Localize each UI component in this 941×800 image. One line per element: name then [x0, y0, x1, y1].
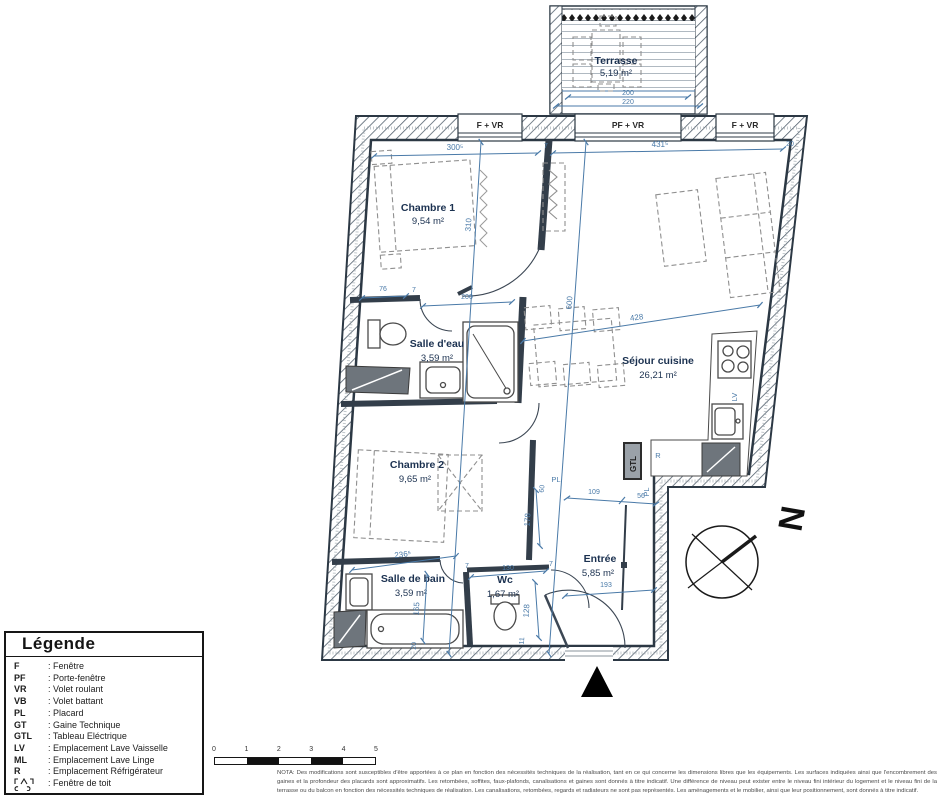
nota-text: NOTA: Des modifications sont susceptible…	[277, 769, 937, 796]
window-left-label: F + VR	[477, 120, 504, 130]
chambre2-label: Chambre 2	[390, 459, 444, 471]
basin-drain	[441, 383, 446, 388]
dim-top-right: 431⁵	[652, 140, 669, 149]
terrace: Terrasse 5,19 m² 200 220	[550, 6, 707, 114]
legend-item: LV: Emplacement Lave Vaisselle	[14, 743, 198, 755]
shower-drain	[504, 388, 510, 394]
dim-chambre2-height: 178	[523, 512, 533, 526]
window-left: F + VR	[458, 114, 522, 141]
salle-de-bain-label: Salle de bain	[381, 573, 445, 585]
dim-sejour-width: 428	[629, 312, 644, 323]
bathtub-inner	[371, 614, 459, 644]
toilet-bowl	[380, 323, 406, 345]
window-center-label: PF + VR	[612, 120, 644, 130]
sejour-label: Séjour cuisine	[622, 355, 694, 367]
dim-sde-left: 76	[379, 286, 387, 293]
floor-plan-sheet: Terrasse 5,19 m² 200 220 F + VR PF + VR	[0, 0, 941, 800]
dim-chambre2-pl: 60	[539, 484, 547, 493]
terrace-label: Terrasse	[594, 55, 637, 67]
dim-wc-height: 128	[522, 603, 532, 617]
chambre1-area: 9,54 m²	[412, 216, 444, 227]
windows: F + VR PF + VR F + VR	[458, 114, 774, 141]
legend-item: VB: Volet battant	[14, 696, 198, 708]
dim-top-wall: 7	[544, 143, 548, 150]
scale-bar-numbers: 0 1 2 3 4 5	[214, 746, 376, 755]
dim-top-left: 300⁵	[447, 143, 464, 152]
legend-item: PF: Porte-fenêtre	[14, 673, 198, 685]
north-letter: N	[770, 503, 812, 534]
legend-item: ML: Emplacement Lave Linge	[14, 755, 198, 767]
gtl-label: GTL	[629, 456, 638, 472]
dim-wc-wall-a: 7	[465, 563, 469, 570]
legend-item: GTL: Tableau Eléctrique	[14, 731, 198, 743]
window-center: PF + VR	[575, 114, 681, 141]
dim-sejour-height: 600	[565, 295, 575, 309]
terrace-guardrail	[562, 9, 695, 21]
wc-area: 1,67 m²	[487, 589, 519, 600]
legend-box: Légende F: Fenêtre PF: Porte-fenêtre VR:…	[4, 631, 204, 795]
dim-sdb-bottom: 20	[411, 642, 418, 650]
dim-top-end: 20	[786, 141, 794, 148]
placard-entree-label: PL	[642, 487, 651, 496]
dim-entree-top1: 109	[588, 489, 600, 496]
legend-item: PL: Placard	[14, 708, 198, 720]
toilet-tank	[368, 320, 380, 348]
dim-sdb-height: 165	[412, 601, 422, 615]
legend-item: R: Emplacement Réfrigérateur	[14, 766, 198, 778]
roof-window-icon	[14, 778, 34, 791]
legend-item: : Fenêtre de toit	[14, 778, 198, 795]
chambre1-label: Chambre 1	[401, 202, 455, 214]
dishwasher-label: LV	[730, 393, 739, 402]
wc-label: Wc	[497, 574, 513, 586]
terrace-dim-200: 200	[622, 90, 634, 97]
terrace-area: 5,19 m²	[600, 68, 632, 79]
entree-label: Entrée	[584, 553, 617, 565]
dim-sde-width: 200	[461, 294, 473, 301]
scale-bar: 0 1 2 3 4 5	[214, 746, 376, 768]
sejour-area: 26,21 m²	[639, 370, 677, 381]
legend-item: VR: Volet roulant	[14, 684, 198, 696]
window-right-label: F + VR	[732, 120, 759, 130]
dim-sde-wall: 7	[412, 287, 416, 294]
scale-bar-segments	[214, 757, 376, 765]
terrace-dim-220: 220	[622, 99, 634, 106]
dim-chambre1-height: 310	[464, 217, 474, 231]
sdb-washbasin	[350, 578, 368, 606]
window-right: F + VR	[716, 114, 774, 141]
salle-deau-area: 3,59 m²	[421, 353, 453, 364]
dim-wc-width: 130	[502, 565, 514, 572]
placard-chambre2-label: PL	[551, 475, 560, 484]
legend-title: Légende	[6, 633, 202, 657]
refrigerator-label: R	[655, 451, 661, 460]
bathtub-faucet	[379, 627, 384, 632]
sink-faucet	[736, 419, 740, 423]
legend-item: F: Fenêtre	[14, 661, 198, 673]
salle-de-bain-area: 3,59 m²	[395, 588, 427, 599]
legend-item: GT: Gaine Technique	[14, 720, 198, 732]
chambre2-area: 9,65 m²	[399, 474, 431, 485]
legend-rows: F: Fenêtre PF: Porte-fenêtre VR: Volet r…	[6, 657, 202, 795]
wc-toilet-bowl	[494, 602, 516, 630]
north-compass: N	[686, 503, 812, 598]
entree-area: 5,85 m²	[582, 568, 614, 579]
salle-deau-label: Salle d'eau	[410, 338, 464, 350]
kitchen-sink	[715, 408, 735, 435]
dim-entree-width: 193	[600, 582, 612, 589]
entrance-marker	[581, 666, 613, 697]
dim-wc-bottom: 11	[519, 637, 526, 645]
dim-wc-wall-b: 7	[549, 561, 553, 568]
washbasin	[426, 367, 460, 393]
